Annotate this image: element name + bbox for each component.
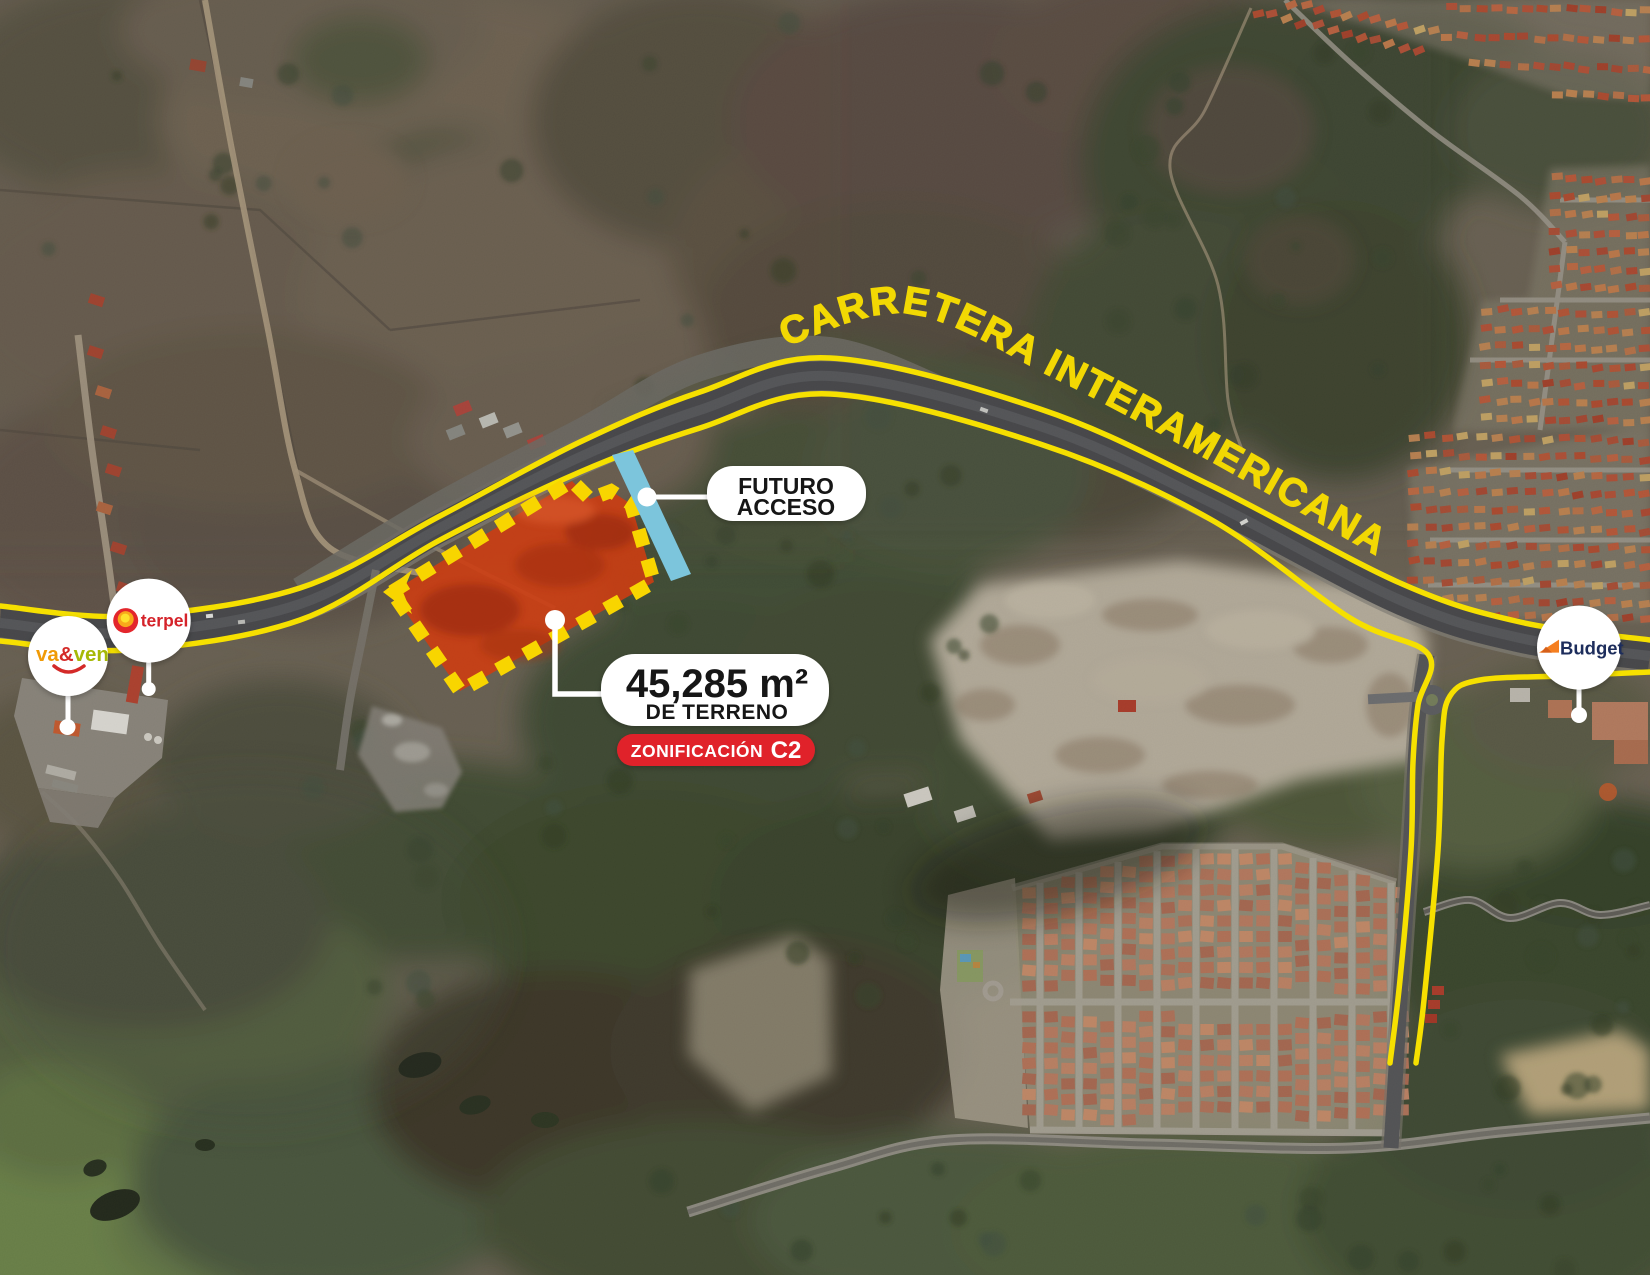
svg-text:Budget: Budget <box>1560 638 1624 659</box>
svg-text:ZONIFICACIÓN: ZONIFICACIÓN <box>631 740 763 761</box>
svg-text:C2: C2 <box>771 737 802 764</box>
svg-text:ACCESO: ACCESO <box>737 494 835 520</box>
svg-text:terpel: terpel <box>141 611 189 631</box>
svg-text:DE TERRENO: DE TERRENO <box>646 701 789 724</box>
svg-text:45,285 m²: 45,285 m² <box>626 662 808 706</box>
svg-text:va&ven: va&ven <box>36 643 109 666</box>
